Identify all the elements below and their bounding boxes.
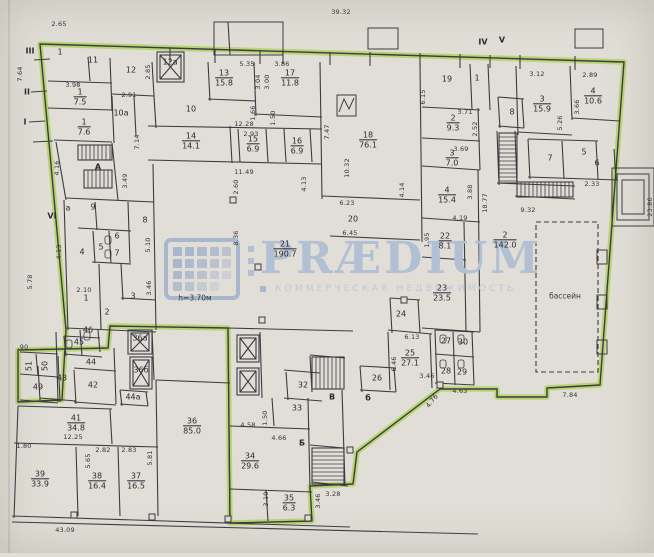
- watermark-text-block: PRÆDIUM КОММЕРЧЕСКАЯ НЕДВИЖИМОСТЬ: [260, 238, 542, 294]
- watermark-subtitle: КОММЕРЧЕСКАЯ НЕДВИЖИМОСТЬ: [275, 284, 517, 294]
- watermark-brand: PRÆDIUM: [260, 238, 542, 280]
- watermark-separator-dots: [248, 246, 254, 276]
- praedium-logo-icon: [164, 238, 240, 300]
- watermark-bullet-icon: [260, 286, 266, 292]
- praedium-watermark: PRÆDIUM КОММЕРЧЕСКАЯ НЕДВИЖИМОСТЬ: [164, 238, 542, 300]
